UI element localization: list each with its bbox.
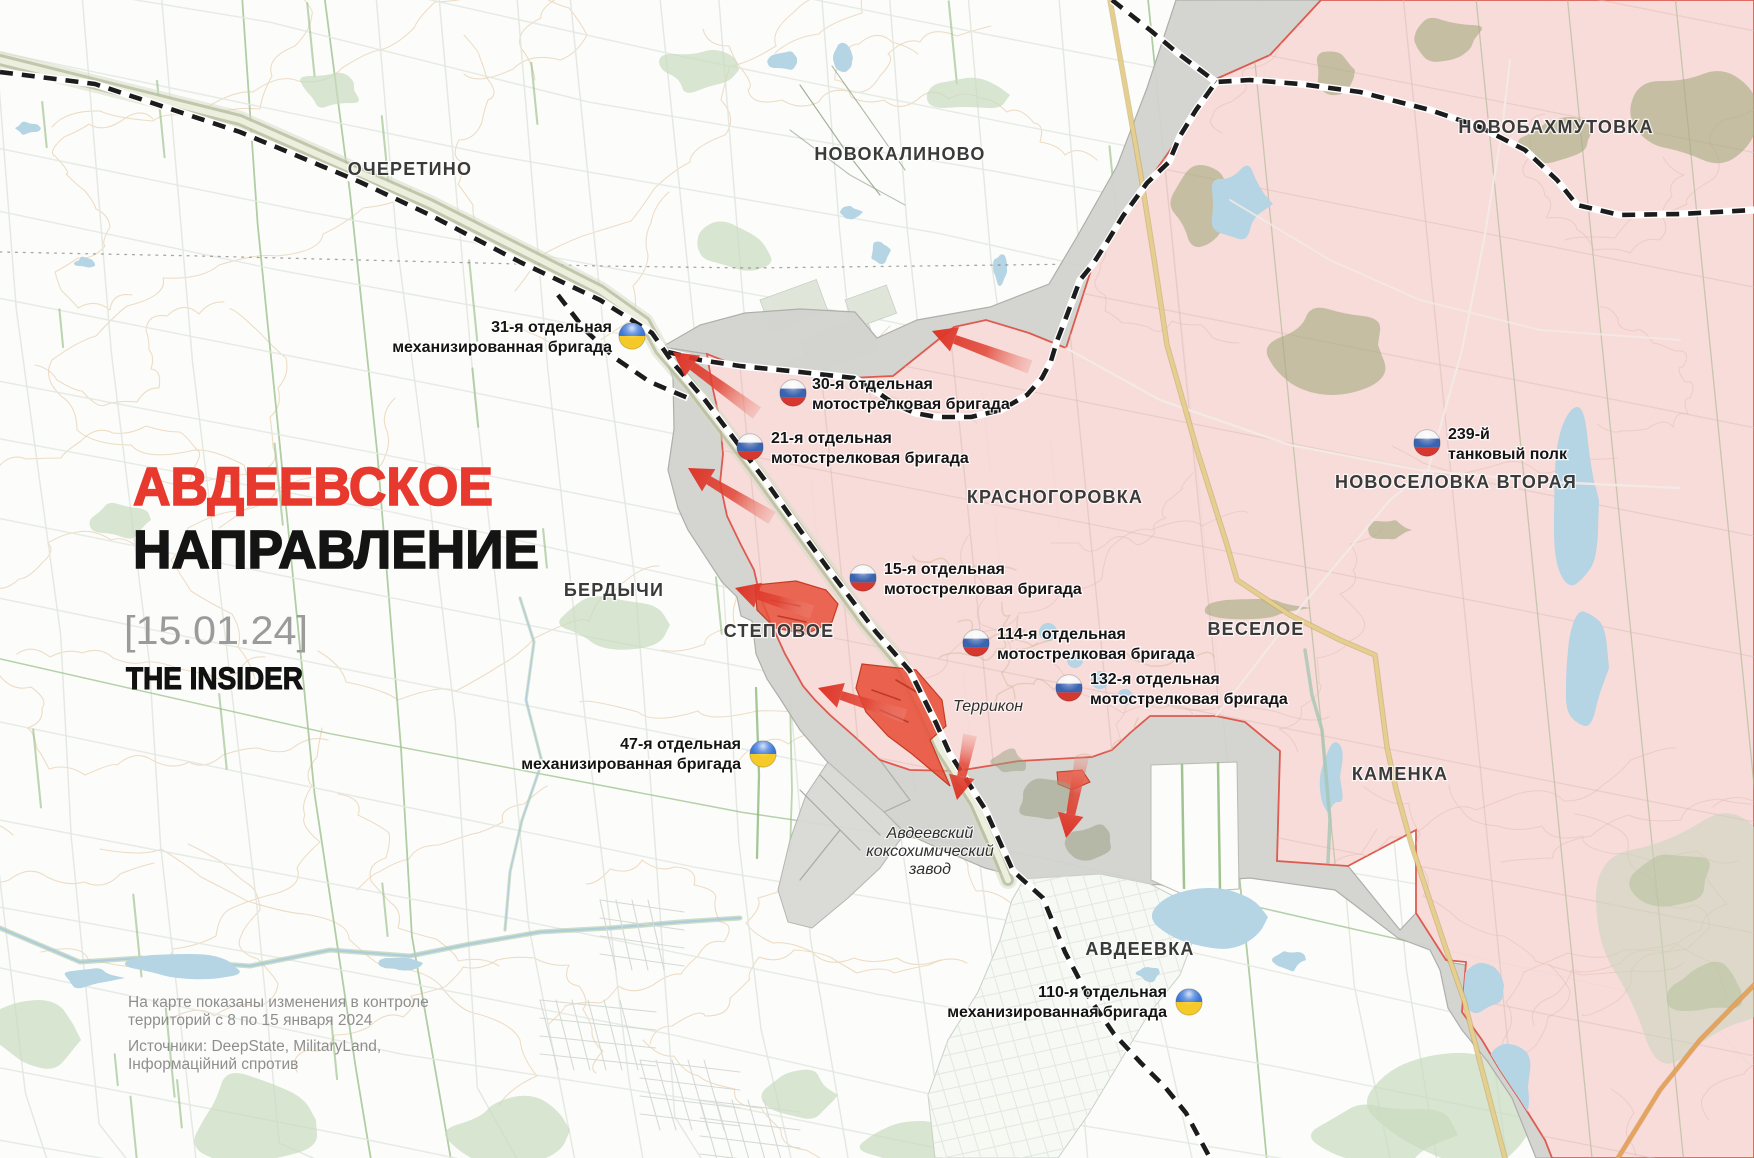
svg-text:НОВОКАЛИНОВО: НОВОКАЛИНОВО: [814, 144, 985, 164]
svg-text:мотострелковая бригада: мотострелковая бригада: [884, 581, 1082, 598]
svg-text:239-й: 239-й: [1448, 426, 1490, 443]
svg-text:[15.01.24]: [15.01.24]: [124, 609, 308, 653]
svg-text:114-я отдельная: 114-я отдельная: [997, 626, 1126, 643]
svg-text:механизированная бригада: механизированная бригада: [947, 1004, 1167, 1021]
svg-text:Террикон: Террикон: [953, 698, 1023, 715]
svg-text:механизированная бригада: механизированная бригада: [521, 756, 741, 773]
svg-text:НОВОБАХМУТОВКА: НОВОБАХМУТОВКА: [1458, 117, 1653, 137]
svg-text:THE INSIDER: THE INSIDER: [126, 660, 303, 696]
svg-text:КАМЕНКА: КАМЕНКА: [1352, 764, 1448, 784]
svg-text:Источники: DeepState, Military: Источники: DeepState, MilitaryLand,: [128, 1038, 381, 1055]
svg-text:мотострелковая бригада: мотострелковая бригада: [812, 396, 1010, 413]
svg-text:НАПРАВЛЕНИЕ: НАПРАВЛЕНИЕ: [133, 520, 539, 580]
svg-text:БЕРДЫЧИ: БЕРДЫЧИ: [564, 580, 664, 600]
svg-text:15-я отдельная: 15-я отдельная: [884, 561, 1005, 578]
svg-text:31-я отдельная: 31-я отдельная: [491, 319, 612, 336]
svg-text:территорий с 8 по 15 января 20: территорий с 8 по 15 января 2024: [128, 1012, 373, 1029]
svg-text:47-я отдельная: 47-я отдельная: [620, 736, 741, 753]
svg-text:110-я отдельная: 110-я отдельная: [1038, 984, 1167, 1001]
svg-text:132-я отдельная: 132-я отдельная: [1090, 671, 1220, 688]
svg-text:ОЧЕРЕТИНО: ОЧЕРЕТИНО: [348, 159, 472, 179]
svg-text:ВЕСЕЛОЕ: ВЕСЕЛОЕ: [1207, 619, 1304, 639]
svg-text:мотострелковая бригада: мотострелковая бригада: [997, 646, 1195, 663]
svg-text:механизированная бригада: механизированная бригада: [392, 339, 612, 356]
svg-text:мотострелковая бригада: мотострелковая бригада: [1090, 691, 1288, 708]
svg-text:Авдеевский: Авдеевский: [886, 825, 974, 842]
svg-text:СТЕПОВОЕ: СТЕПОВОЕ: [724, 621, 835, 641]
svg-text:Інформаційний спротив: Інформаційний спротив: [128, 1056, 298, 1073]
svg-text:КРАСНОГОРОВКА: КРАСНОГОРОВКА: [967, 487, 1143, 507]
svg-text:танковый полк: танковый полк: [1448, 446, 1568, 463]
svg-text:АВДЕЕВСКОЕ: АВДЕЕВСКОЕ: [133, 457, 493, 517]
svg-text:На карте показаны изменения в: На карте показаны изменения в контроле: [128, 994, 429, 1011]
svg-text:АВДЕЕВКА: АВДЕЕВКА: [1085, 939, 1194, 959]
svg-text:завод: завод: [908, 861, 951, 878]
svg-text:21-я отдельная: 21-я отдельная: [771, 430, 892, 447]
svg-text:мотострелковая бригада: мотострелковая бригада: [771, 450, 969, 467]
svg-text:коксохимический: коксохимический: [866, 843, 994, 860]
svg-text:30-я отдельная: 30-я отдельная: [812, 376, 933, 393]
svg-text:НОВОСЕЛОВКА ВТОРАЯ: НОВОСЕЛОВКА ВТОРАЯ: [1335, 472, 1577, 492]
